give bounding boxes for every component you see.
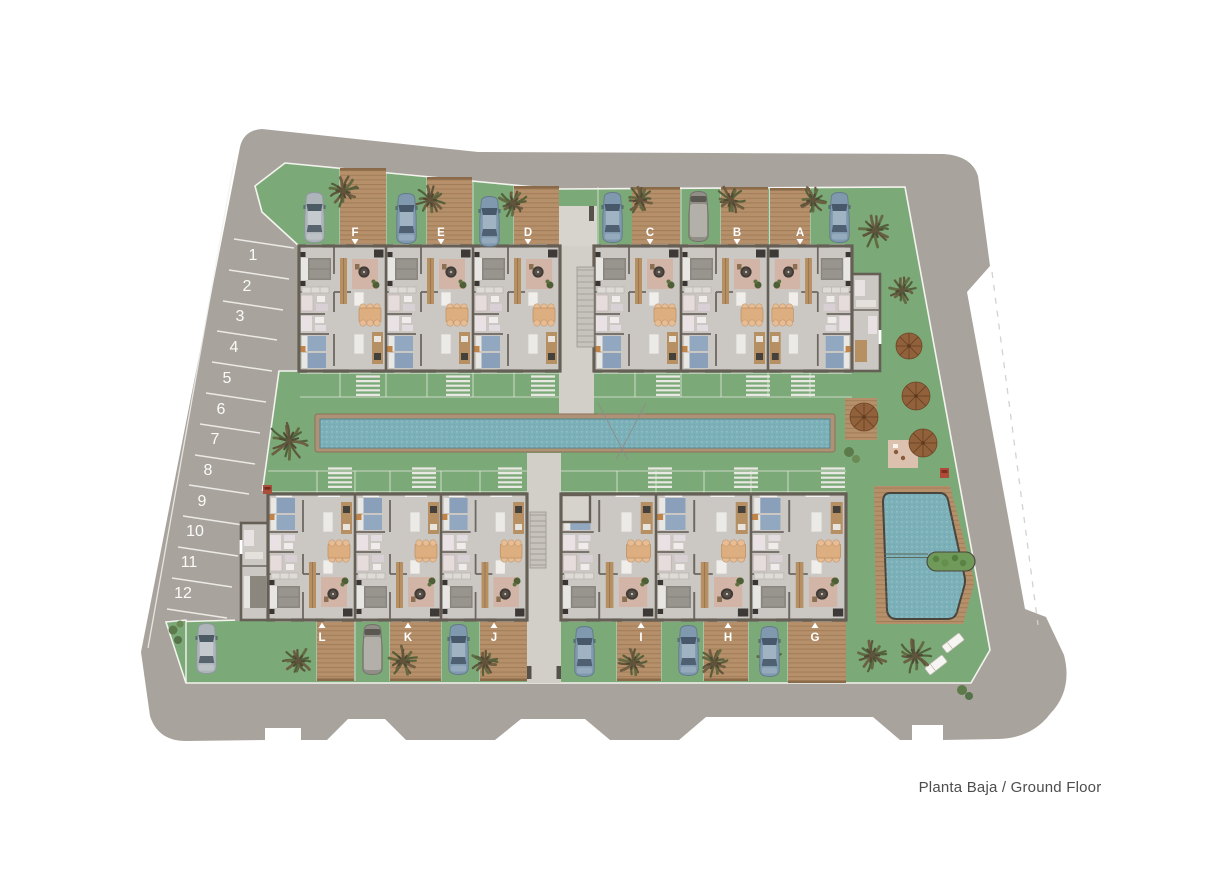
svg-text:6: 6	[217, 401, 226, 418]
svg-text:J: J	[491, 632, 497, 644]
svg-text:5: 5	[223, 370, 232, 387]
svg-text:F: F	[351, 227, 358, 239]
svg-text:I: I	[639, 632, 642, 644]
svg-text:11: 11	[181, 554, 198, 571]
svg-text:8: 8	[204, 462, 213, 479]
svg-text:L: L	[318, 632, 325, 644]
svg-text:12: 12	[174, 585, 192, 602]
svg-text:H: H	[724, 632, 732, 644]
svg-text:D: D	[524, 227, 532, 239]
svg-text:3: 3	[236, 308, 245, 325]
svg-text:K: K	[404, 632, 413, 644]
svg-text:G: G	[811, 632, 820, 644]
svg-text:B: B	[733, 227, 741, 239]
svg-text:E: E	[437, 227, 445, 239]
svg-text:2: 2	[243, 278, 252, 295]
svg-text:4: 4	[230, 339, 239, 356]
svg-text:7: 7	[211, 431, 220, 448]
svg-text:1: 1	[249, 247, 258, 264]
svg-text:9: 9	[198, 493, 207, 510]
svg-text:C: C	[646, 227, 654, 239]
svg-text:Planta Baja / Ground Floor: Planta Baja / Ground Floor	[919, 779, 1102, 796]
svg-text:A: A	[796, 227, 804, 239]
svg-text:10: 10	[186, 523, 204, 540]
